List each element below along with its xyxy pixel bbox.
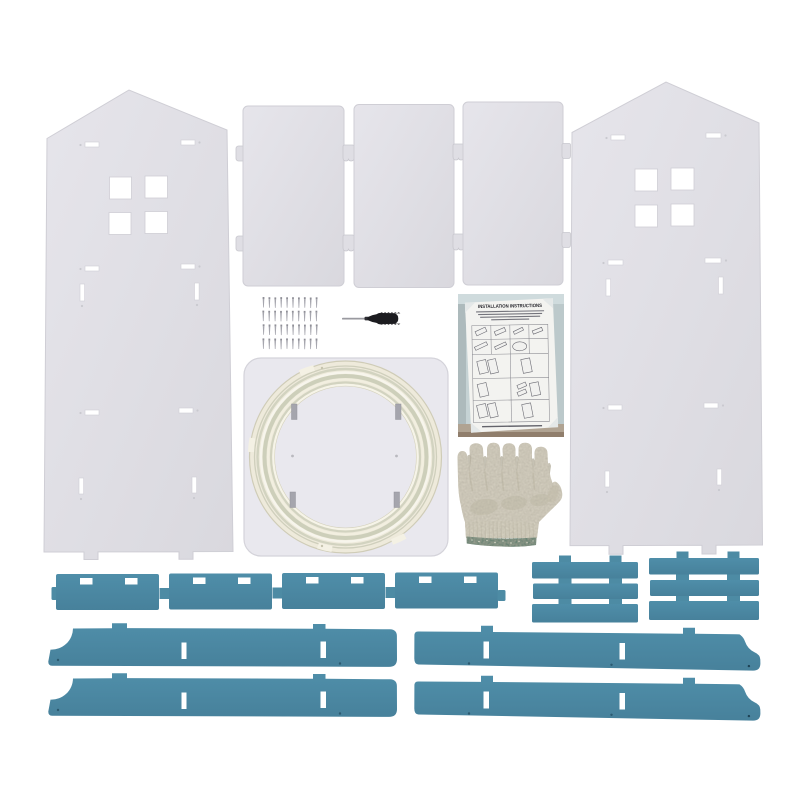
svg-text:INSTALLATION INSTRUCTIONS: INSTALLATION INSTRUCTIONS — [478, 303, 543, 310]
